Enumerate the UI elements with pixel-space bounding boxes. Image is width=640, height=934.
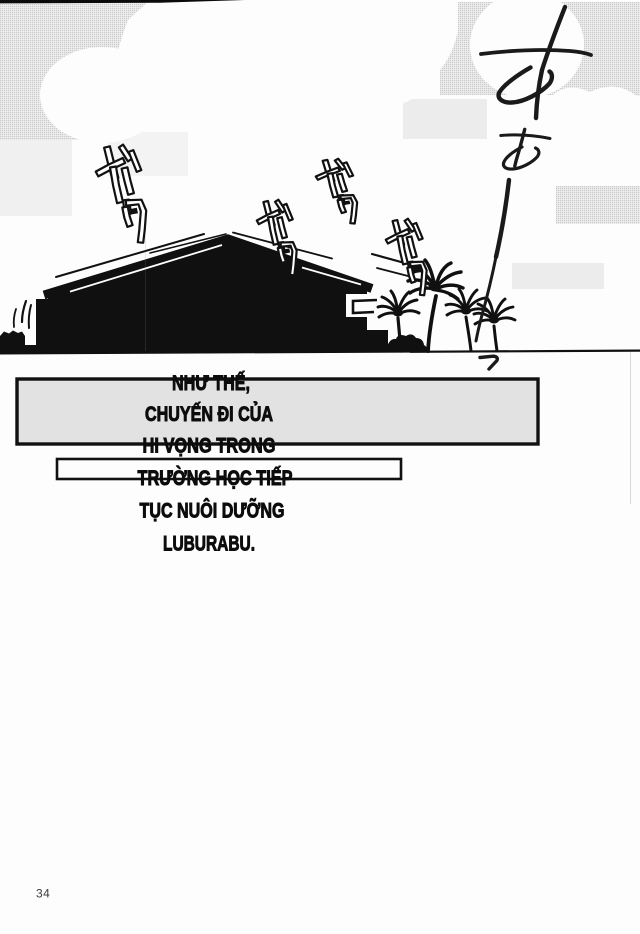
svg-text:TỤC NUÔI DƯỠNG: TỤC NUÔI DƯỠNG xyxy=(140,498,285,523)
svg-text:CHUYẾN ĐI CỦA: CHUYẾN ĐI CỦA xyxy=(145,401,273,426)
svg-text:LUBURABU.: LUBURABU. xyxy=(163,532,255,556)
svg-text:34: 34 xyxy=(36,887,50,901)
svg-text:TRƯỜNG HỌC TIẾP: TRƯỜNG HỌC TIẾP xyxy=(138,465,293,490)
svg-text:NHƯ THẾ,: NHƯ THẾ, xyxy=(172,370,250,395)
svg-text:HI VỌNG TRONG: HI VỌNG TRONG xyxy=(143,434,276,458)
